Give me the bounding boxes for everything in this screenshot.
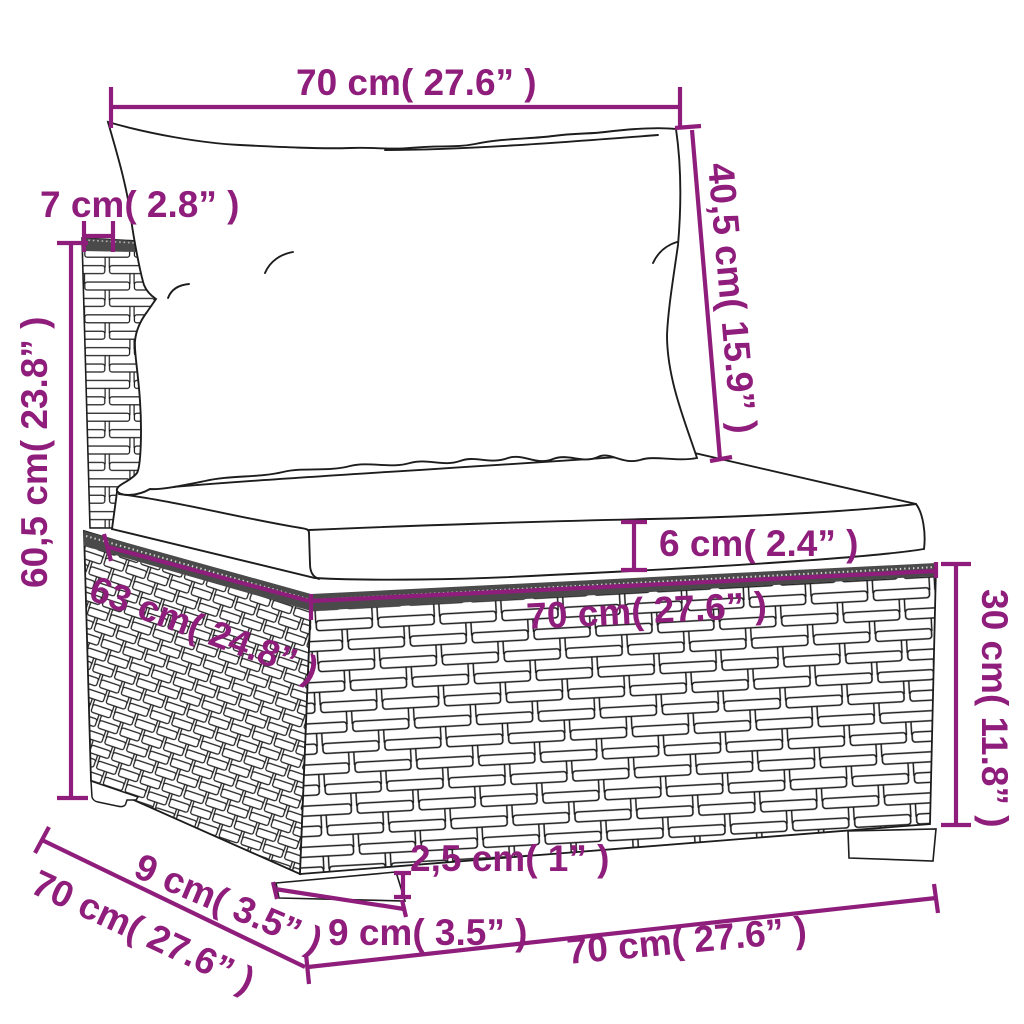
svg-text:9 cm( 3.5” ): 9 cm( 3.5” ) [328,912,527,953]
svg-text:6 cm( 2.4” ): 6 cm( 2.4” ) [659,523,858,564]
svg-text:60,5 cm( 23.8” ): 60,5 cm( 23.8” ) [14,317,55,588]
svg-text:7 cm( 2.8” ): 7 cm( 2.8” ) [40,184,239,225]
svg-text:70 cm( 27.6” ): 70 cm( 27.6” ) [296,62,537,103]
svg-text:30 cm( 11.8” ): 30 cm( 11.8” ) [974,589,1015,828]
svg-text:2,5 cm( 1” ): 2,5 cm( 1” ) [410,838,609,879]
